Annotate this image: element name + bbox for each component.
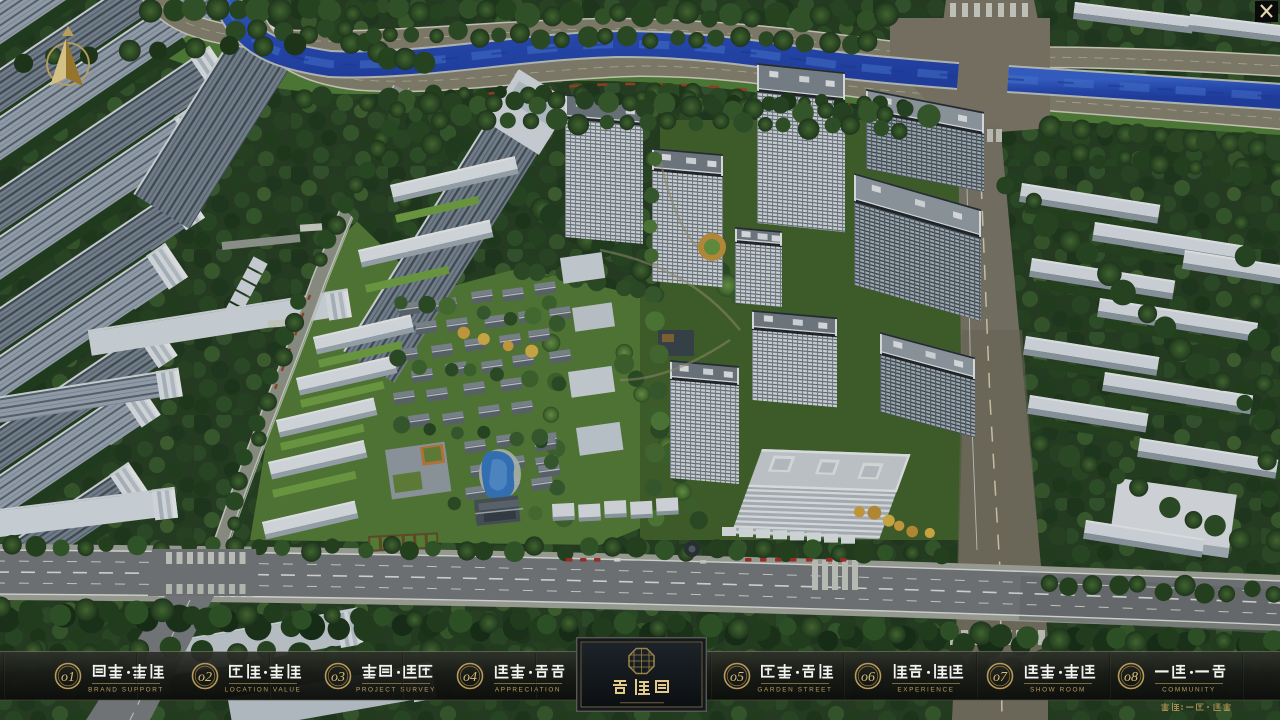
svg-text:o8: o8 (1124, 670, 1138, 685)
svg-text:PROJECT SURVEY: PROJECT SURVEY (356, 687, 436, 694)
svg-text:COMMUNITY: COMMUNITY (1162, 687, 1216, 694)
svg-text:LOCATION VALUE: LOCATION VALUE (225, 687, 302, 694)
svg-text:EXPERIENCE: EXPERIENCE (897, 687, 954, 694)
svg-text:GARDEN STREET: GARDEN STREET (757, 687, 832, 694)
svg-text:o6: o6 (861, 670, 875, 685)
svg-text:o1: o1 (61, 670, 75, 685)
svg-text:o3: o3 (331, 670, 345, 685)
svg-text:o4: o4 (463, 670, 477, 685)
svg-text:o7: o7 (993, 670, 1008, 685)
svg-text:o2: o2 (198, 670, 212, 685)
svg-text:o5: o5 (730, 670, 744, 685)
svg-text:SHOW ROOM: SHOW ROOM (1030, 687, 1086, 694)
svg-text:APPRECIATION: APPRECIATION (495, 687, 561, 694)
svg-text:BRAND SUPPORT: BRAND SUPPORT (88, 687, 164, 694)
